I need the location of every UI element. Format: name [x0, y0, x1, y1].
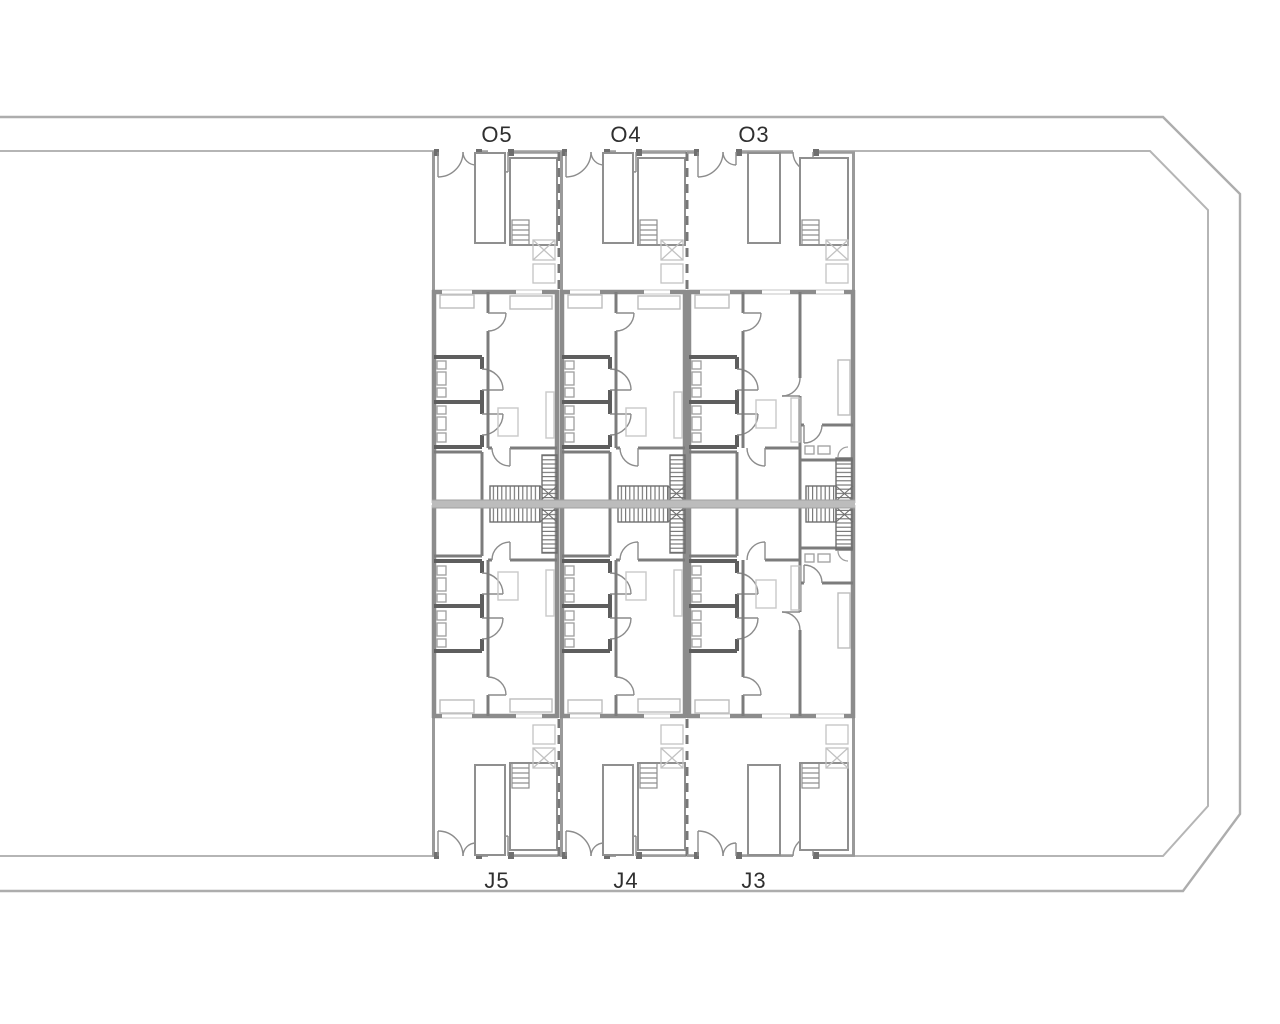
- wardrobe: [440, 295, 474, 308]
- gate-pillar: [736, 149, 742, 156]
- dwelling-floor-plan: [687, 288, 855, 504]
- stair-run-horizontal-icon: [806, 486, 836, 501]
- garden-box: [826, 264, 848, 283]
- gate-pillar: [813, 149, 819, 156]
- sofa: [546, 392, 554, 438]
- unit-label-J3: J3: [741, 868, 766, 893]
- table: [756, 400, 776, 428]
- patio-structure: [510, 158, 557, 245]
- dwelling-floor-plan: [432, 288, 558, 504]
- central-spine-wall: [432, 500, 855, 508]
- staircase: [806, 458, 853, 501]
- upper-row-units: [432, 148, 855, 503]
- patio-structure: [800, 158, 848, 245]
- unit-label-J4: J4: [613, 868, 638, 893]
- front-garden: [432, 148, 559, 290]
- floor-plan-drawing: O5 O4 O3 J5 J4 J3: [0, 0, 1280, 1024]
- closet: [838, 360, 850, 415]
- lower-row-units-mirrored: [432, 505, 855, 860]
- floor-plan-page: O5 O4 O3 J5 J4 J3: [0, 0, 1280, 1024]
- wardrobe: [695, 295, 729, 308]
- gate-pillar: [508, 149, 514, 156]
- kitchen-counter: [510, 296, 552, 309]
- townhouse-column-standard: [432, 148, 559, 503]
- bathroom-fixtures: [805, 446, 848, 457]
- townhouse-column-standard-2: [560, 148, 687, 503]
- living-room-walls: [689, 292, 853, 503]
- stair-run-horizontal-icon: [490, 486, 540, 501]
- living-room-walls: [434, 292, 557, 500]
- front-garden: [687, 148, 855, 290]
- pod-door-swing-icon: [737, 369, 758, 435]
- garden-box: [533, 264, 555, 283]
- planter: [475, 153, 505, 243]
- pod-door-swing-icon: [482, 369, 503, 435]
- staircase: [490, 455, 557, 501]
- unit-label-O5: O5: [481, 122, 512, 147]
- unit-label-J5: J5: [484, 868, 509, 893]
- unit-label-O4: O4: [610, 122, 641, 147]
- unit-label-O3: O3: [738, 122, 769, 147]
- planter: [748, 153, 780, 243]
- townhouse-column-wide: [687, 148, 855, 503]
